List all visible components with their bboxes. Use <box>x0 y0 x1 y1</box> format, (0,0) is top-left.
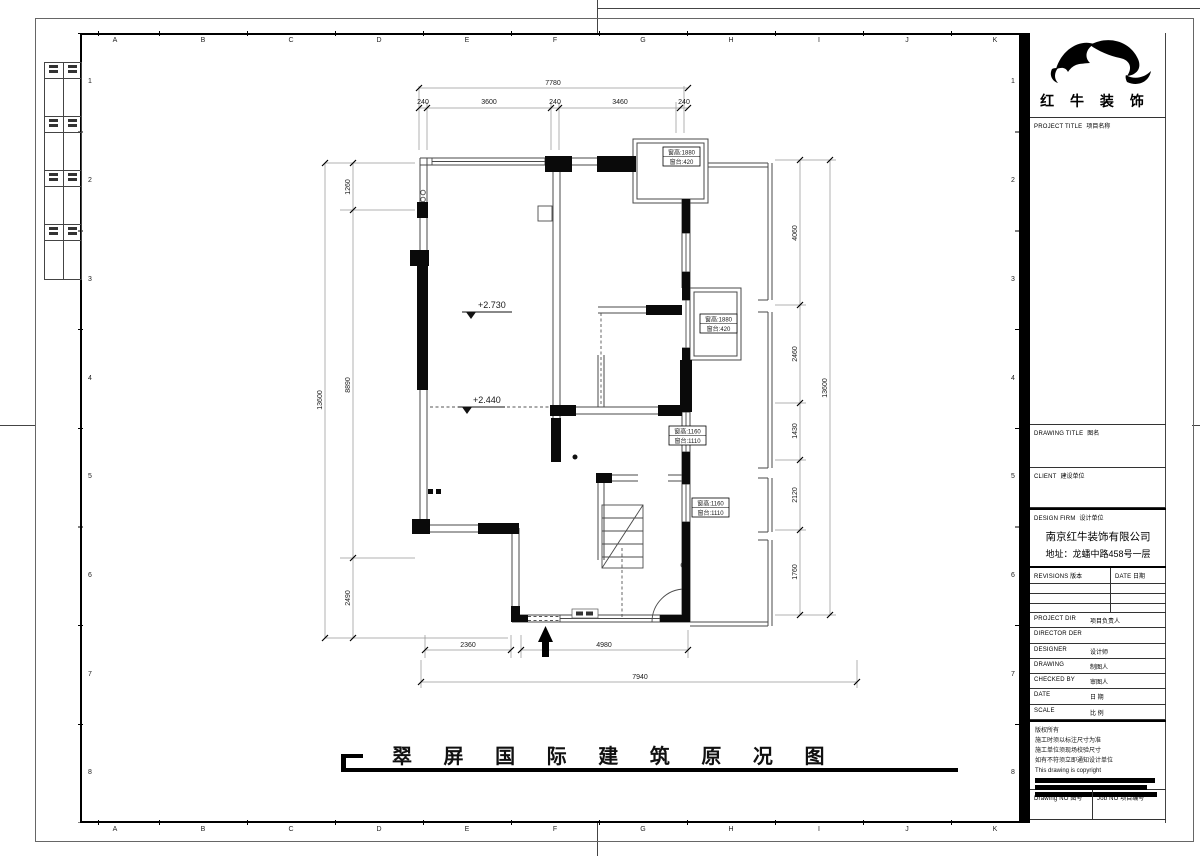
note-line: 如有不符须立即通知设计单位 <box>1035 756 1161 766</box>
small-label-box <box>572 609 598 618</box>
stamp-cell <box>45 171 64 187</box>
job-no-label-zh: 项目编号 <box>1120 796 1144 802</box>
note-line: 版权所有 <box>1035 726 1161 736</box>
level-upper: +2.730 <box>478 300 506 310</box>
note-line: 施工单位须现场校验尺寸 <box>1035 746 1161 756</box>
point-marker <box>573 455 578 460</box>
grid-letter: E <box>457 826 477 833</box>
crop-mark-left <box>0 425 35 426</box>
design-firm-label-zh: 设计单位 <box>1080 513 1104 522</box>
window-tag: 窗高:1880 窗台:420 <box>700 314 737 333</box>
grid-letter: D <box>369 826 389 833</box>
design-firm-section: DESIGN FIRM 设计单位 南京红牛装饰有限公司 地址：龙蟠中路458号一… <box>1030 508 1166 568</box>
note-line: 施工时须以标注尺寸为准 <box>1035 736 1161 746</box>
svg-text:窗高:1880: 窗高:1880 <box>705 316 733 324</box>
svg-text:3600: 3600 <box>481 99 497 106</box>
stamp-row <box>45 225 81 241</box>
client-label-en: CLIENT <box>1034 474 1057 480</box>
wall-lines <box>420 158 772 626</box>
revision-row <box>1030 584 1166 594</box>
svg-text:窗台:1110: 窗台:1110 <box>697 509 724 517</box>
solid-walls <box>410 156 692 622</box>
job-no-label-en: Job NO <box>1097 796 1119 802</box>
svg-text:1760: 1760 <box>792 564 799 580</box>
stamp-cell <box>64 117 82 133</box>
rednow-bull-logo-icon <box>1034 35 1160 87</box>
svg-text:240: 240 <box>678 99 690 106</box>
checked-by-row: CHECKED BY审图人 <box>1030 674 1166 689</box>
project-title-label-en: PROJECT TITLE <box>1034 124 1082 130</box>
dashed-lines <box>430 313 622 621</box>
column-symbol <box>538 206 552 221</box>
designer-row: DESIGNER设计师 <box>1030 644 1166 659</box>
titleblock-heavy-bar <box>1021 33 1030 823</box>
plan-title: 翠 屏 国 际 建 筑 原 况 图 <box>392 740 837 769</box>
stamp-row <box>45 117 81 133</box>
design-firm-label-en: DESIGN FIRM <box>1034 516 1076 522</box>
date-col-label-en: DATE <box>1115 574 1131 580</box>
grid-letter: K <box>985 826 1005 833</box>
drawing-title-section: DRAWING TITLE 图名 <box>1030 425 1166 468</box>
svg-text:窗台:420: 窗台:420 <box>707 325 731 333</box>
revisions-label-en: REVISIONS <box>1034 574 1068 580</box>
grid-letter: F <box>545 826 565 833</box>
stamp-cell <box>45 79 64 117</box>
stamp-row <box>45 79 81 117</box>
drawing-no-section: Drawing NO 图号 Job NO 项目编号 <box>1030 790 1166 820</box>
logo-section: 红 牛 装 饰 <box>1030 33 1166 118</box>
stamp-cell <box>45 117 64 133</box>
client-section: CLIENT 建设单位 <box>1030 468 1166 508</box>
design-firm-address: 地址：龙蟠中路458号一层 <box>1030 547 1166 560</box>
svg-text:窗高:1160: 窗高:1160 <box>674 428 701 436</box>
stamp-cell <box>64 63 82 79</box>
svg-text:2460: 2460 <box>792 346 799 362</box>
window-tag: 窗高:1160 窗台:1110 <box>692 498 729 517</box>
title-block: 红 牛 装 饰 PROJECT TITLE 项目名称 DRAWING TITLE… <box>1030 33 1166 823</box>
stamp-cell <box>64 79 82 117</box>
brand-name: 红 牛 装 饰 <box>1030 91 1160 111</box>
dimension-witness-lines <box>325 86 857 688</box>
svg-text:1430: 1430 <box>792 423 799 439</box>
grid-letter: I <box>809 826 829 833</box>
stamp-cell <box>45 63 64 79</box>
revision-stamp-strip <box>44 62 82 280</box>
project-dir-row: PROJECT DIR项目负责人 <box>1030 613 1166 628</box>
revisions-header: REVISIONS 版本 DATE 日期 <box>1030 568 1166 584</box>
stamp-row <box>45 187 81 225</box>
title-bracket-top <box>341 754 363 758</box>
window-tag: 窗高:1880 窗台:420 <box>663 147 700 166</box>
redacted-line <box>1035 778 1155 783</box>
project-title-section: PROJECT TITLE 项目名称 <box>1030 118 1166 425</box>
window-tag: 窗高:1160 窗台:1110 <box>669 426 706 445</box>
stamp-cell <box>64 187 82 225</box>
svg-text:2360: 2360 <box>460 642 476 649</box>
stamp-cell <box>45 187 64 225</box>
svg-text:2490: 2490 <box>345 590 352 606</box>
grid-letter: J <box>897 826 917 833</box>
grid-letter: C <box>281 826 301 833</box>
tiny-annotation <box>428 489 433 494</box>
notes-section: 版权所有 施工时须以标注尺寸为准 施工单位须现场校验尺寸 如有不符须立即通知设计… <box>1030 720 1166 790</box>
level-markers: +2.730 +2.440 <box>458 300 512 414</box>
stamp-cell <box>64 171 82 187</box>
note-line: This drawing is copyright <box>1035 766 1161 776</box>
svg-text:1260: 1260 <box>345 179 352 195</box>
dim-bottom-total: 7940 <box>632 674 648 681</box>
grid-letter: H <box>721 826 741 833</box>
entry-arrow <box>538 626 553 657</box>
svg-text:240: 240 <box>549 99 561 106</box>
director-row: DIRECTOR DER <box>1030 628 1166 643</box>
grid-letter: G <box>633 826 653 833</box>
stamp-cell <box>64 225 82 241</box>
date-col-label-zh: 日期 <box>1133 574 1145 580</box>
drawing-no-label-zh: 图号 <box>1070 796 1082 802</box>
dim-left-total: 13600 <box>317 390 324 410</box>
stamp-row <box>45 63 81 79</box>
grid-letter: A <box>105 826 125 833</box>
svg-text:240: 240 <box>417 99 429 106</box>
drawing-no-label-en: Drawing NO <box>1034 796 1069 802</box>
signature-fields: PROJECT DIR项目负责人 DIRECTOR DER DESIGNER设计… <box>1030 613 1166 720</box>
floor-plan: +2.730 +2.440 窗高:1880 窗台:420 窗高:1880 窗台:… <box>80 33 1021 823</box>
dimension-labels: 7780 240 3600 240 3460 240 1260 8890 249… <box>317 80 829 681</box>
stamp-cell <box>45 241 64 279</box>
window-lines <box>432 158 690 622</box>
dim-right-total: 13600 <box>822 378 829 398</box>
stamp-cell <box>45 133 64 171</box>
revisions-label-zh: 版本 <box>1070 574 1082 580</box>
client-label-zh: 建设单位 <box>1061 471 1085 480</box>
svg-text:2120: 2120 <box>792 487 799 503</box>
revision-row <box>1030 594 1166 604</box>
revision-row <box>1030 604 1166 613</box>
stamp-row <box>45 241 81 279</box>
svg-text:窗高:1160: 窗高:1160 <box>697 500 724 508</box>
svg-text:窗台:1110: 窗台:1110 <box>674 437 701 445</box>
svg-text:窗高:1880: 窗高:1880 <box>668 149 696 157</box>
svg-text:3460: 3460 <box>612 99 628 106</box>
tiny-annotation <box>436 489 441 494</box>
svg-text:4060: 4060 <box>792 225 799 241</box>
dimension-ticks <box>322 85 860 685</box>
date-row: DATE日 期 <box>1030 689 1166 704</box>
level-lower: +2.440 <box>473 395 501 405</box>
dim-top-total: 7780 <box>545 80 561 87</box>
stamp-row <box>45 133 81 171</box>
drawing-row: DRAWING制图人 <box>1030 659 1166 674</box>
crop-mark-top-right <box>597 8 1200 9</box>
grid-letter: B <box>193 826 213 833</box>
project-title-label-zh: 项目名称 <box>1086 121 1110 130</box>
drawing-title-label-en: DRAWING TITLE <box>1034 431 1083 437</box>
stamp-cell <box>45 225 64 241</box>
svg-text:4980: 4980 <box>596 642 612 649</box>
stamp-cell <box>64 133 82 171</box>
scale-row: SCALE比 例 <box>1030 705 1166 720</box>
design-firm-company: 南京红牛装饰有限公司 <box>1030 529 1166 544</box>
drawing-sheet: { "sheet": { "grid_letters": ["A","B","C… <box>0 0 1200 856</box>
stamp-row <box>45 171 81 187</box>
stamp-cell <box>64 241 82 279</box>
svg-text:8890: 8890 <box>345 377 352 393</box>
svg-text:窗台:420: 窗台:420 <box>670 158 694 166</box>
drawing-title-label-zh: 图名 <box>1087 428 1099 437</box>
